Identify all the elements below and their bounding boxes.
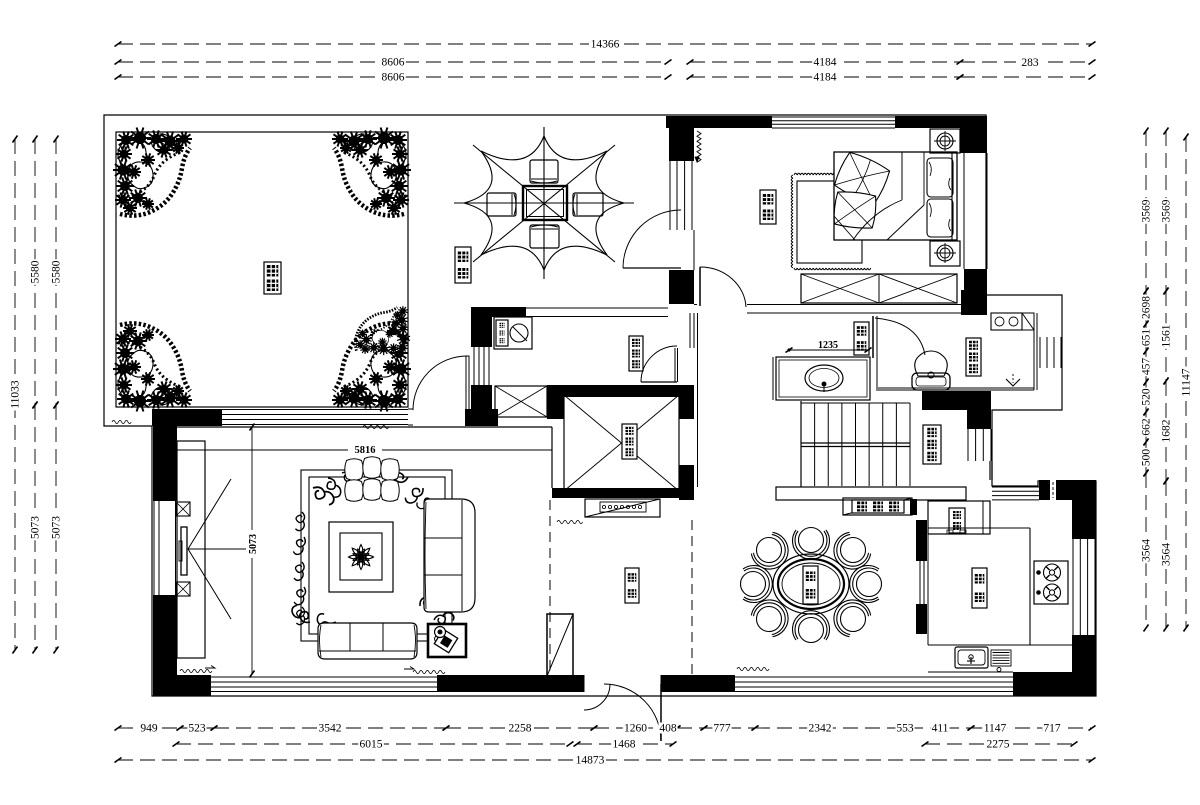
svg-text:8606: 8606 (382, 72, 405, 84)
svg-text:651: 651 (1141, 329, 1153, 347)
svg-text:520: 520 (1141, 388, 1153, 406)
svg-text:949: 949 (140, 723, 158, 735)
svg-text:5580: 5580 (30, 260, 42, 283)
svg-text:5073: 5073 (30, 516, 42, 539)
svg-text:6015: 6015 (360, 739, 383, 751)
svg-text:500: 500 (1141, 449, 1153, 467)
svg-text:3542: 3542 (319, 723, 342, 735)
svg-text:2258: 2258 (509, 723, 532, 735)
svg-text:1147: 1147 (984, 723, 1007, 735)
svg-text:1235: 1235 (818, 340, 838, 351)
svg-text:408: 408 (659, 723, 677, 735)
svg-text:3564: 3564 (1141, 539, 1153, 562)
svg-text:717: 717 (1043, 723, 1061, 735)
svg-text:553: 553 (896, 723, 914, 735)
svg-text:2275: 2275 (987, 739, 1010, 751)
svg-text:2698: 2698 (1141, 296, 1153, 319)
svg-text:3564: 3564 (1161, 543, 1173, 566)
svg-text:1561: 1561 (1161, 324, 1173, 347)
svg-text:3569: 3569 (1141, 199, 1153, 222)
svg-text:4184: 4184 (814, 72, 837, 84)
svg-text:1468: 1468 (613, 739, 636, 751)
svg-text:1260: 1260 (624, 723, 647, 735)
svg-text:2342: 2342 (809, 723, 832, 735)
svg-text:5073: 5073 (51, 516, 63, 539)
svg-text:14873: 14873 (576, 755, 605, 767)
svg-text:523: 523 (188, 723, 206, 735)
svg-text:8606: 8606 (382, 57, 405, 69)
svg-text:662: 662 (1141, 418, 1153, 436)
svg-text:283: 283 (1021, 57, 1039, 69)
svg-text:5816: 5816 (355, 445, 376, 456)
svg-text:11033: 11033 (10, 380, 22, 409)
svg-text:3569: 3569 (1161, 199, 1173, 222)
svg-text:14366: 14366 (591, 39, 620, 51)
svg-text:457: 457 (1141, 358, 1153, 376)
svg-text:4184: 4184 (814, 57, 837, 69)
svg-text:5580: 5580 (51, 260, 63, 283)
svg-text:5073: 5073 (248, 534, 259, 554)
svg-text:411: 411 (932, 723, 949, 735)
svg-text:1682: 1682 (1161, 419, 1173, 442)
svg-text:11147: 11147 (1181, 368, 1193, 396)
svg-text:777: 777 (713, 723, 731, 735)
